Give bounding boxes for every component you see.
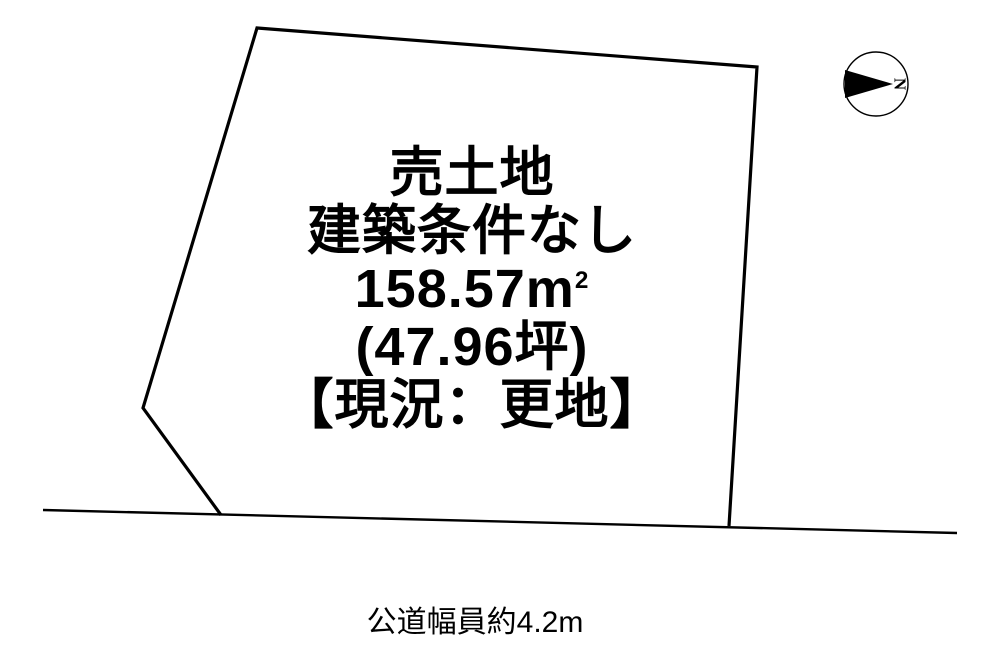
area-sqm-superscript: 2: [575, 267, 590, 294]
north-label: N: [891, 78, 910, 91]
area-sqm-value: 158.57m: [355, 259, 575, 319]
sale-type-label: 売土地: [212, 144, 732, 202]
area-tsubo-label: (47.96坪): [212, 318, 732, 376]
parcel-label: 売土地 建築条件なし 158.57m2 (47.96坪) 【現況：更地】: [212, 144, 732, 434]
area-sqm-label: 158.57m2: [212, 260, 732, 318]
building-condition-label: 建築条件なし: [212, 202, 732, 260]
road-line: [43, 510, 957, 533]
north-compass: N: [844, 52, 910, 116]
status-label: 【現況：更地】: [212, 376, 732, 434]
road-width-label: 公道幅員約4.2m: [275, 605, 675, 641]
plot-diagram-canvas: N 売土地 建築条件なし 158.57m2 (47.96坪) 【現況：更地】 公…: [0, 0, 1000, 670]
